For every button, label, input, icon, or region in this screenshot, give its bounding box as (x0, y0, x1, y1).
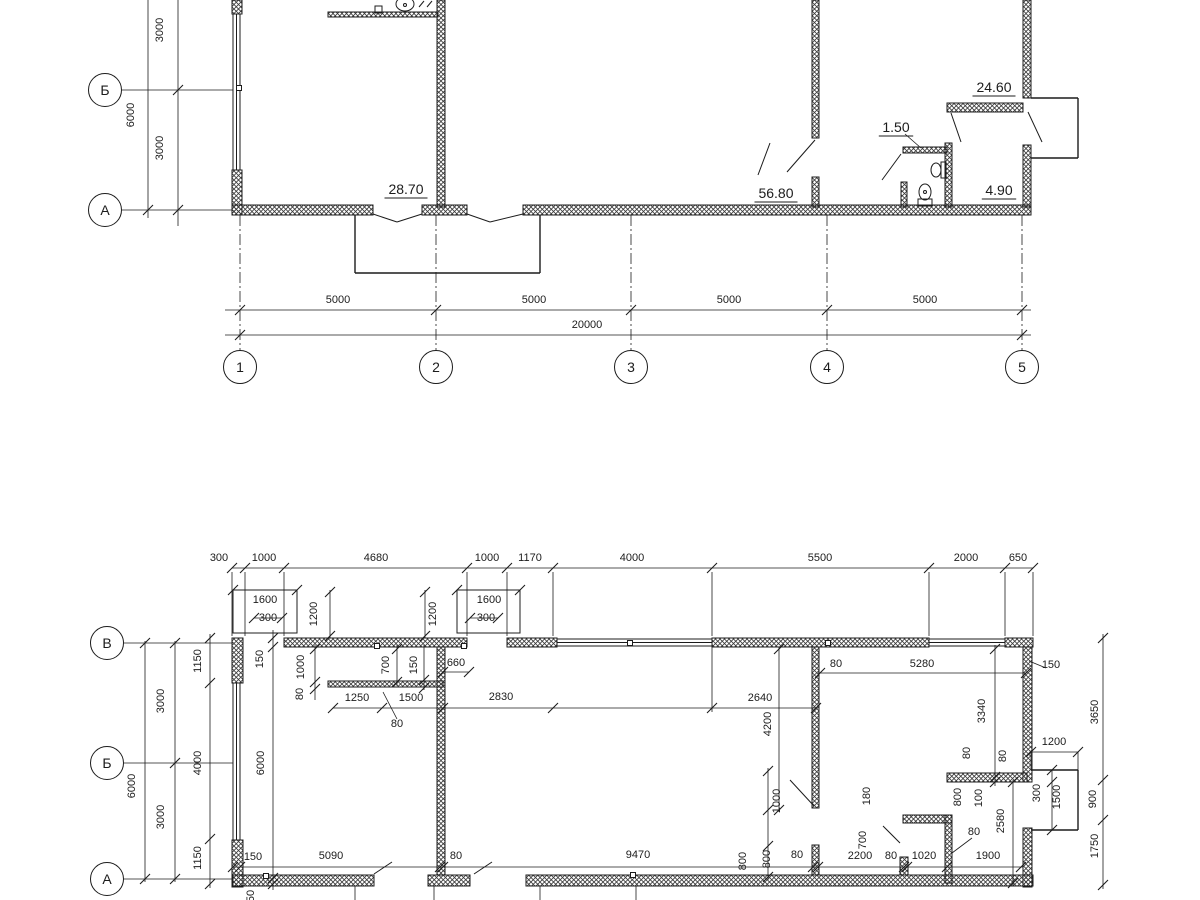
wall-segment (712, 638, 929, 647)
dimension-label: 5000 (913, 294, 937, 306)
dimension-label: 150 (1042, 659, 1060, 671)
axis-circle-label: В (102, 635, 111, 651)
wall-segment (232, 0, 242, 14)
dimension-label: 50 (245, 890, 257, 900)
wall-segment (233, 875, 374, 886)
door-leaf (490, 214, 523, 222)
dimension-label: 4000 (192, 751, 204, 775)
window-bands-layer (233, 14, 1005, 840)
witness-mark (826, 641, 831, 646)
floor-plan-page: 3000600030005000500050005000200003001000… (0, 0, 1200, 900)
wall-segment (1023, 647, 1032, 782)
dimension-label: 80 (961, 747, 973, 759)
door-leaf (883, 826, 900, 843)
dimension-label: 1250 (345, 692, 369, 704)
dimension-label: 1000 (295, 655, 307, 679)
wall-segment (437, 0, 445, 207)
dimension-label: 2200 (848, 850, 872, 862)
door-leaf (787, 140, 815, 172)
wall-segment (903, 147, 947, 153)
dimension-label: 1150 (192, 649, 204, 673)
axis-circle-label: Б (100, 82, 109, 98)
dimension-label: 180 (861, 787, 873, 805)
axis-circle-label: 1 (236, 359, 244, 375)
dimension-label: 2580 (995, 809, 1007, 833)
dimension-label: 3000 (155, 805, 167, 829)
dimension-label: 300 (259, 612, 277, 624)
room-area-label: 4.90 (985, 182, 1012, 198)
dimension-label: 1000 (475, 552, 499, 564)
dimension-label: 6000 (125, 103, 137, 127)
dimension-label: 6000 (255, 751, 267, 775)
axis-circle-label: 5 (1018, 359, 1026, 375)
wall-segment (523, 205, 1031, 215)
dimension-label: 700 (857, 831, 869, 849)
dimension-label: 80 (391, 718, 403, 730)
dimension-label: 3000 (154, 18, 166, 42)
dimension-label: 4000 (620, 552, 644, 564)
sanitary-fixture (396, 0, 414, 11)
dimension-label: 3000 (154, 136, 166, 160)
wall-segment (945, 815, 952, 883)
dimension-label: 1000 (771, 789, 783, 813)
dimension-label: 80 (294, 688, 306, 700)
dimension-label: 1900 (976, 850, 1000, 862)
door-leaf (397, 214, 422, 222)
dimension-label: 5090 (319, 850, 343, 862)
witness-mark (264, 874, 269, 879)
dimension-label: 300 (1031, 784, 1043, 802)
door-leaf (474, 862, 492, 874)
dimension-label: 2000 (954, 552, 978, 564)
wall-segment (947, 103, 1023, 112)
dimension-label: 80 (791, 849, 803, 861)
dimension-label: 80 (997, 750, 1009, 762)
wall-segment (328, 12, 438, 17)
dimension-label: 5000 (326, 294, 350, 306)
dimension-label: 800 (761, 850, 773, 868)
door-leaves-layer (373, 1, 1042, 874)
dimension-label: 80 (885, 850, 897, 862)
witness-mark (237, 86, 242, 91)
dimension-label: 9470 (626, 849, 650, 861)
dimension-label: 1600 (477, 594, 501, 606)
dimension-label: 2640 (748, 692, 772, 704)
door-leaf (790, 780, 814, 806)
witness-mark (631, 873, 636, 878)
dimension-label: 1020 (912, 850, 936, 862)
dimension-label: 150 (408, 656, 420, 674)
dimension-label: 80 (968, 826, 980, 838)
dimension-label: 1200 (427, 602, 439, 626)
dimension-label: 1200 (308, 602, 320, 626)
dimension-label: 6000 (126, 774, 138, 798)
door-leaf (373, 214, 397, 222)
dimension-label: 150 (244, 851, 262, 863)
dimension-label: 80 (830, 658, 842, 670)
witness-mark (628, 641, 633, 646)
dimension-label: 800 (952, 788, 964, 806)
wall-segment (812, 845, 819, 875)
axis-circle-label: А (100, 202, 110, 218)
dimension-label: 300 (210, 552, 228, 564)
door-leaf (882, 154, 901, 180)
room-area-label: 1.50 (882, 119, 909, 135)
dimension-label: 1200 (1042, 736, 1066, 748)
dimension-label: 1170 (518, 552, 542, 564)
dimension-label: 100 (973, 789, 985, 807)
axis-circle-label: Б (102, 755, 111, 771)
dimension-label: 80 (450, 850, 462, 862)
sanitary-fixture (404, 4, 407, 7)
axis-circles-layer: БА12345ВБА (89, 74, 1039, 896)
sanitary-fixture (919, 184, 931, 200)
wall-segment (232, 638, 243, 683)
wall-segment (1023, 0, 1031, 98)
witness-mark (462, 644, 467, 649)
walls-layer (232, 0, 1033, 887)
dimension-label: 1150 (192, 846, 204, 870)
dimension-label: 5280 (910, 658, 934, 670)
wall-segment (812, 0, 819, 138)
dimension-label: 4200 (762, 712, 774, 736)
axis-circle-label: 2 (432, 359, 440, 375)
door-leaf (427, 1, 432, 7)
dimension-label: 660 (447, 657, 465, 669)
dimension-label: 1000 (252, 552, 276, 564)
dimension-label: 900 (1087, 790, 1099, 808)
dimension-label: 5500 (808, 552, 832, 564)
dimension-label: 5000 (522, 294, 546, 306)
dimension-label: 1750 (1089, 834, 1101, 858)
dimension-label: 700 (380, 656, 392, 674)
witness-marks-layer (237, 86, 831, 879)
wall-segment (900, 857, 908, 875)
dimension-label: 1600 (253, 594, 277, 606)
dimension-label: 3000 (155, 689, 167, 713)
dimension-label: 20000 (572, 319, 603, 331)
door-leaf (758, 143, 770, 175)
wall-segment (507, 638, 557, 647)
room-area-label: 24.60 (976, 79, 1011, 95)
door-leaf (374, 862, 392, 874)
dimension-label: 1500 (399, 692, 423, 704)
plumbing-fixtures-layer (375, 0, 946, 206)
room-area-label: 28.70 (388, 181, 423, 197)
leader-line (952, 838, 972, 853)
door-leaf (419, 1, 424, 7)
dimension-label: 150 (254, 650, 266, 668)
wall-segment (428, 875, 470, 886)
dimension-label: 5000 (717, 294, 741, 306)
wall-segment (1005, 638, 1033, 647)
dimension-extension-layer (122, 0, 1103, 900)
door-leaf (1028, 112, 1042, 142)
labels-layer: 3000600030005000500050005000200003001000… (125, 18, 1101, 900)
dimension-label: 1500 (1051, 785, 1063, 809)
witness-mark (375, 644, 380, 649)
wall-segment (1023, 145, 1031, 207)
sanitary-fixture (924, 191, 927, 194)
axis-circle-label: А (102, 871, 112, 887)
dimension-label: 300 (477, 612, 495, 624)
axis-circle-label: 4 (823, 359, 831, 375)
door-leaf (951, 113, 961, 142)
sanitary-fixture (931, 163, 941, 177)
wall-segment (901, 182, 907, 207)
wall-segment (812, 177, 819, 207)
axis-circle-label: 3 (627, 359, 635, 375)
room-area-label: 56.80 (758, 185, 793, 201)
wall-segment (812, 647, 819, 808)
dimension-label: 650 (1009, 552, 1027, 564)
floor-plan-drawing: 3000600030005000500050005000200003001000… (0, 0, 1200, 900)
dimension-label: 3340 (976, 699, 988, 723)
axis-lines-layer (240, 215, 1022, 351)
door-leaf (467, 214, 490, 222)
wall-segment (526, 875, 1013, 886)
dimension-label: 4680 (364, 552, 388, 564)
dimension-label: 800 (737, 852, 749, 870)
dimension-label: 3650 (1089, 700, 1101, 724)
dimension-label: 2830 (489, 691, 513, 703)
wall-segment (232, 205, 373, 215)
